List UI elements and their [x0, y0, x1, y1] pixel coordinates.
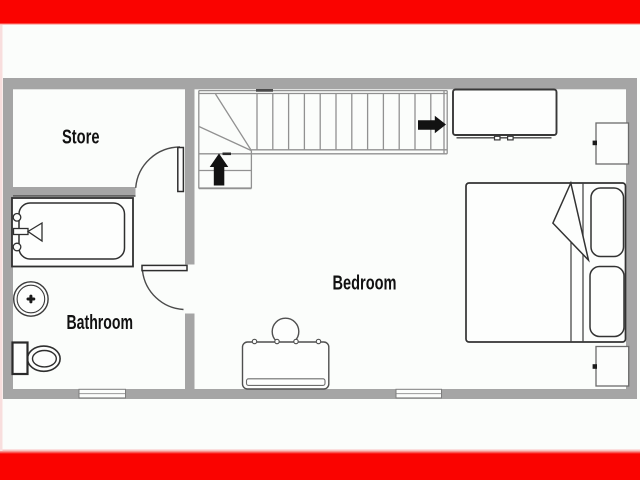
svg-text:Bathroom: Bathroom: [67, 312, 134, 334]
svg-text:Bedroom: Bedroom: [333, 272, 397, 294]
svg-text:Store: Store: [62, 127, 100, 149]
